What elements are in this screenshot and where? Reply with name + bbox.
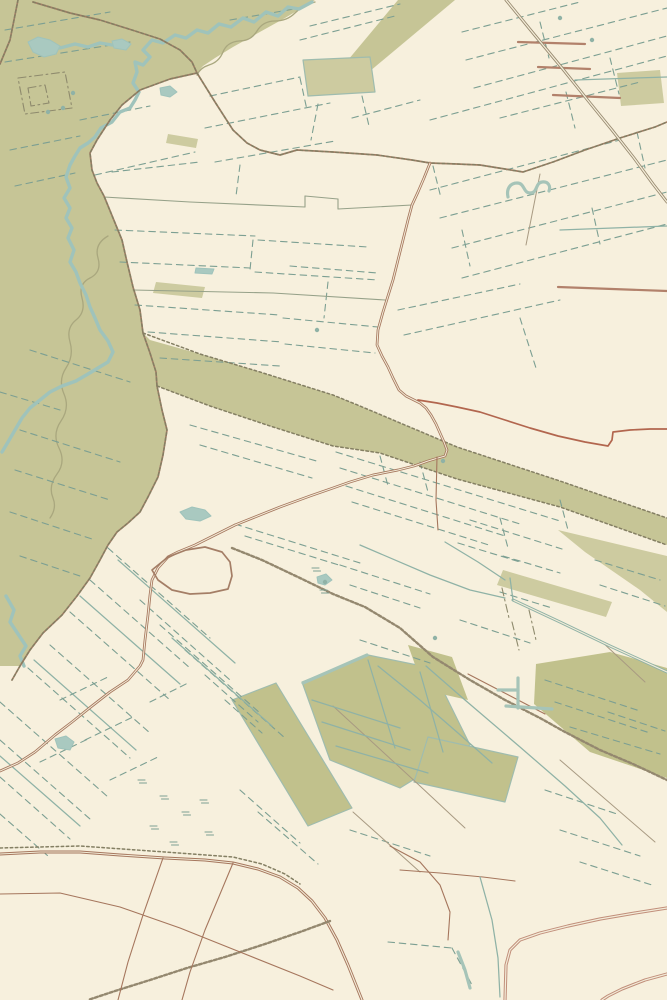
pond-dot [46,110,50,114]
pond-dot [323,580,327,584]
pond-dot [441,459,445,463]
map-viewport[interactable] [0,0,667,1000]
pond-dot [71,91,75,95]
field-top-right [617,70,664,106]
pond-dot [433,636,437,640]
pond-dot [61,106,65,110]
pond-dot [558,16,562,20]
map-canvas [0,0,667,1000]
pond-dot [315,328,319,332]
pond-sliver-bay [195,268,214,274]
field-top-middle [303,57,375,96]
pond-dot [590,38,594,42]
